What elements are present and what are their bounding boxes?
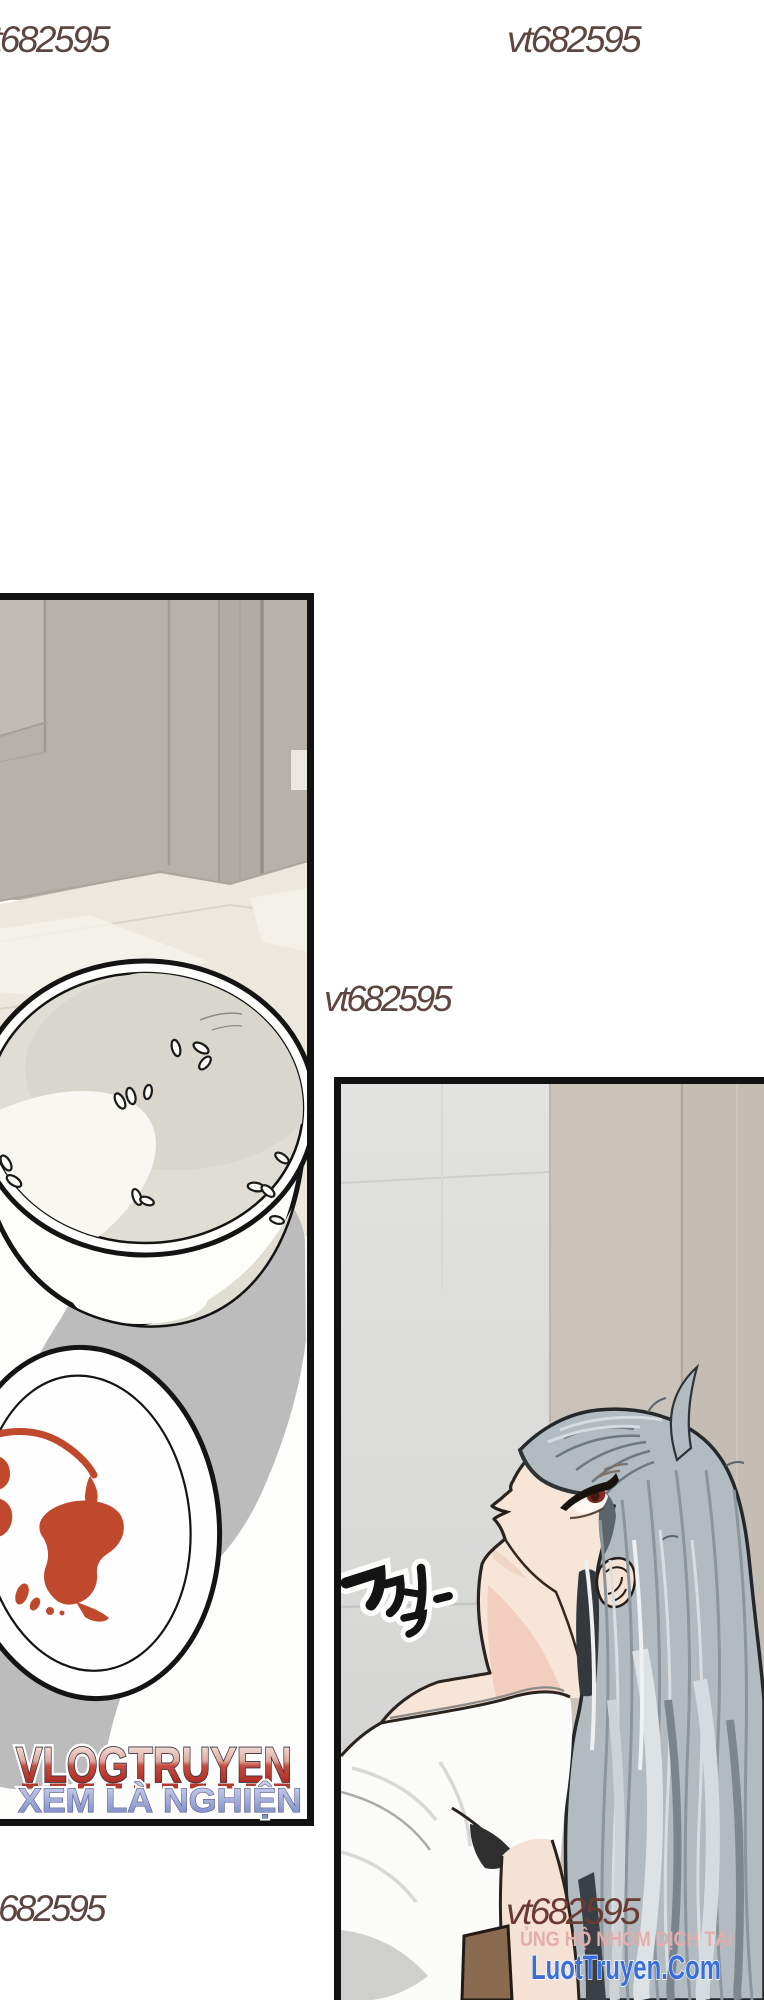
- svg-text:vt682595: vt682595: [507, 19, 642, 60]
- svg-text:vt682595: vt682595: [506, 1891, 641, 1932]
- svg-text:XEM LÀ NGHIỆN: XEM LÀ NGHIỆN: [18, 1782, 302, 1820]
- svg-text:682595: 682595: [0, 1888, 107, 1929]
- svg-text:vt682595: vt682595: [0, 19, 111, 60]
- svg-text:vt682595: vt682595: [324, 978, 454, 1019]
- svg-text:ỦNG HỘ NHÓM DỊCH TẠI: ỦNG HỘ NHÓM DỊCH TẠI: [520, 1927, 733, 1951]
- svg-text:LuotTruyen.Com: LuotTruyen.Com: [531, 1949, 721, 1987]
